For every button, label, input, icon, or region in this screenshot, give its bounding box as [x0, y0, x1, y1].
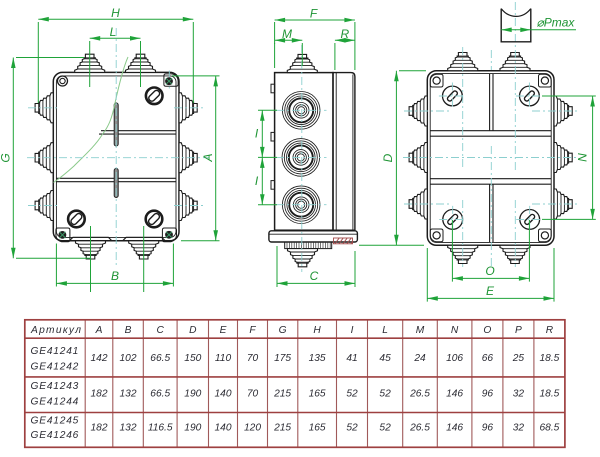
svg-text:96: 96	[482, 388, 494, 399]
svg-text:25: 25	[512, 353, 525, 364]
svg-text:96: 96	[482, 422, 494, 433]
svg-text:52: 52	[346, 388, 358, 399]
svg-text:146: 146	[446, 388, 463, 399]
svg-text:52: 52	[379, 388, 391, 399]
svg-text:215: 215	[273, 422, 291, 433]
svg-text:L: L	[110, 25, 117, 39]
svg-text:41: 41	[346, 353, 357, 364]
svg-text:132: 132	[120, 388, 137, 399]
svg-text:M: M	[282, 27, 292, 41]
svg-text:O: O	[483, 325, 491, 336]
svg-text:66.5: 66.5	[150, 388, 170, 399]
svg-text:D: D	[189, 325, 197, 336]
svg-text:140: 140	[215, 388, 232, 399]
svg-text:146: 146	[446, 422, 463, 433]
svg-text:L: L	[382, 325, 388, 336]
svg-text:66.5: 66.5	[150, 353, 170, 364]
svg-text:165: 165	[309, 422, 326, 433]
svg-text:G: G	[279, 325, 287, 336]
svg-text:52: 52	[379, 422, 391, 433]
svg-text:A: A	[201, 153, 215, 162]
svg-text:R: R	[340, 27, 349, 41]
svg-text:45: 45	[379, 353, 391, 364]
svg-text:F: F	[310, 7, 318, 21]
svg-text:D: D	[381, 153, 395, 162]
svg-text:135: 135	[309, 353, 326, 364]
svg-text:18.5: 18.5	[539, 353, 559, 364]
svg-text:H: H	[111, 6, 120, 20]
svg-text:190: 190	[184, 388, 201, 399]
svg-text:26.5: 26.5	[409, 388, 430, 399]
svg-text:68.5: 68.5	[539, 422, 559, 433]
svg-text:150: 150	[184, 353, 201, 364]
svg-text:Артикул: Артикул	[30, 325, 82, 336]
svg-text:26.5: 26.5	[409, 422, 430, 433]
svg-text:142: 142	[91, 353, 108, 364]
svg-text:182: 182	[91, 422, 108, 433]
svg-text:116.5: 116.5	[148, 422, 173, 433]
svg-text:GE41245: GE41245	[31, 416, 80, 427]
svg-text:120: 120	[244, 422, 261, 433]
svg-text:H: H	[313, 325, 321, 336]
svg-text:M: M	[416, 325, 425, 336]
svg-text:24: 24	[413, 353, 426, 364]
svg-text:18.5: 18.5	[539, 388, 559, 399]
svg-text:175: 175	[274, 353, 291, 364]
svg-text:70: 70	[247, 388, 259, 399]
svg-text:52: 52	[346, 422, 358, 433]
svg-text:132: 132	[120, 422, 137, 433]
svg-text:C: C	[310, 269, 319, 283]
svg-text:G: G	[0, 153, 13, 162]
svg-text:B: B	[125, 325, 132, 336]
svg-text:110: 110	[215, 353, 232, 364]
svg-text:N: N	[451, 325, 459, 336]
svg-text:F: F	[249, 325, 256, 336]
svg-text:GE41244: GE41244	[31, 397, 80, 408]
svg-text:A: A	[95, 325, 103, 336]
svg-text:106: 106	[446, 353, 463, 364]
svg-text:GE41241: GE41241	[31, 346, 80, 357]
svg-text:R: R	[546, 325, 554, 336]
svg-text:140: 140	[215, 422, 232, 433]
svg-text:N: N	[576, 153, 590, 162]
svg-text:190: 190	[184, 422, 201, 433]
svg-text:66: 66	[482, 353, 494, 364]
svg-text:32: 32	[513, 422, 525, 433]
svg-text:102: 102	[120, 353, 137, 364]
svg-text:165: 165	[309, 388, 326, 399]
svg-text:O: O	[485, 264, 494, 278]
svg-text:182: 182	[91, 388, 108, 399]
svg-text:GE41246: GE41246	[31, 430, 80, 441]
svg-text:⌀Pmax: ⌀Pmax	[537, 16, 576, 30]
svg-text:E: E	[220, 325, 227, 336]
svg-text:I: I	[351, 325, 354, 336]
svg-text:32: 32	[513, 388, 525, 399]
svg-text:E: E	[486, 284, 495, 298]
svg-text:C: C	[157, 325, 165, 336]
svg-text:GE41243: GE41243	[31, 381, 80, 392]
svg-text:B: B	[111, 269, 119, 283]
svg-text:70: 70	[247, 353, 259, 364]
svg-text:GE41242: GE41242	[31, 362, 80, 373]
svg-text:P: P	[515, 325, 522, 336]
svg-text:215: 215	[273, 388, 291, 399]
